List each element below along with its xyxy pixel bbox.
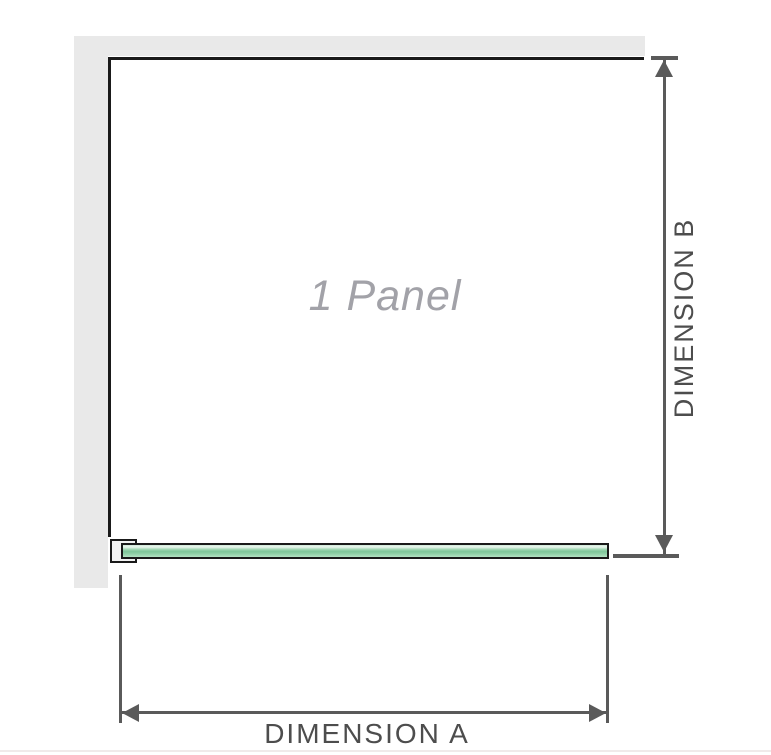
wall-strip-vertical — [74, 36, 108, 588]
wall-strip-horizontal — [74, 36, 645, 56]
dimension-a-label: DIMENSION A — [217, 718, 517, 750]
panel-count-label: 1 Panel — [235, 272, 535, 322]
arrow-right-icon — [589, 704, 606, 722]
panel-outline-top — [108, 57, 644, 60]
shower-panel-diagram: 1 Panel DIMENSION B DIMENSION A — [0, 0, 771, 755]
dimension-a-line — [122, 711, 606, 714]
arrow-down-icon — [655, 535, 673, 552]
arrow-left-icon — [122, 704, 139, 722]
dimension-b-bottom-tick — [613, 554, 679, 558]
bottom-divider — [0, 750, 771, 752]
dimension-b-label: DIMENSION B — [668, 118, 700, 518]
panel-outline-left — [108, 57, 111, 537]
arrow-up-icon — [655, 60, 673, 77]
dimension-b-line — [663, 59, 666, 554]
dimension-a-left-extension — [119, 575, 122, 723]
glass-panel-bar — [121, 543, 609, 559]
dimension-a-right-extension — [606, 575, 609, 723]
